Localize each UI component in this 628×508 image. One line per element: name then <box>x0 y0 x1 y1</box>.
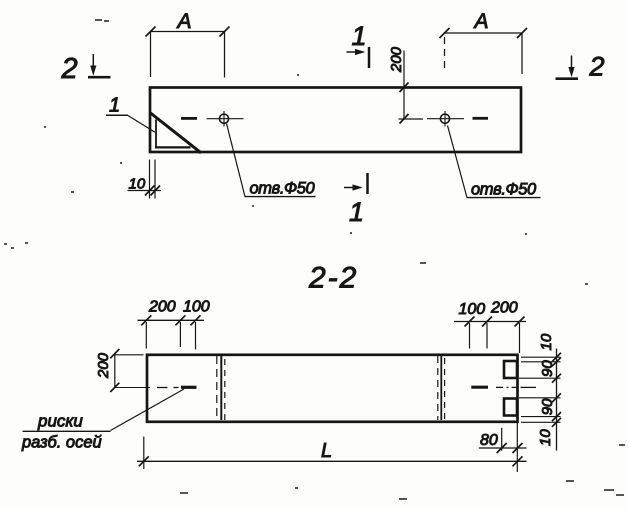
svg-text:80: 80 <box>480 432 498 449</box>
svg-text:1: 1 <box>349 197 364 227</box>
svg-text:10: 10 <box>538 333 555 350</box>
svg-text:1: 1 <box>109 95 120 117</box>
svg-text:2-2: 2-2 <box>308 262 358 295</box>
svg-text:10: 10 <box>129 176 146 193</box>
svg-text:1: 1 <box>352 21 367 51</box>
svg-text:A: A <box>176 10 192 33</box>
svg-text:200: 200 <box>148 299 176 316</box>
svg-text:A: A <box>473 10 489 33</box>
svg-text:200: 200 <box>388 46 405 73</box>
svg-text:отв.Ф50: отв.Ф50 <box>250 180 316 198</box>
svg-text:200: 200 <box>95 352 112 379</box>
svg-text:90: 90 <box>539 398 556 415</box>
svg-text:100: 100 <box>459 301 486 318</box>
svg-text:L: L <box>321 440 332 462</box>
svg-text:90: 90 <box>539 360 556 377</box>
svg-text:2: 2 <box>61 53 78 85</box>
svg-text:отв.Ф50: отв.Ф50 <box>471 181 537 199</box>
svg-text:100: 100 <box>183 299 210 316</box>
svg-text:200: 200 <box>490 300 518 317</box>
svg-text:10: 10 <box>537 429 554 446</box>
svg-text:риски: риски <box>37 412 83 431</box>
svg-text:2: 2 <box>589 52 605 82</box>
svg-text:разб. осей: разб. осей <box>21 434 102 452</box>
